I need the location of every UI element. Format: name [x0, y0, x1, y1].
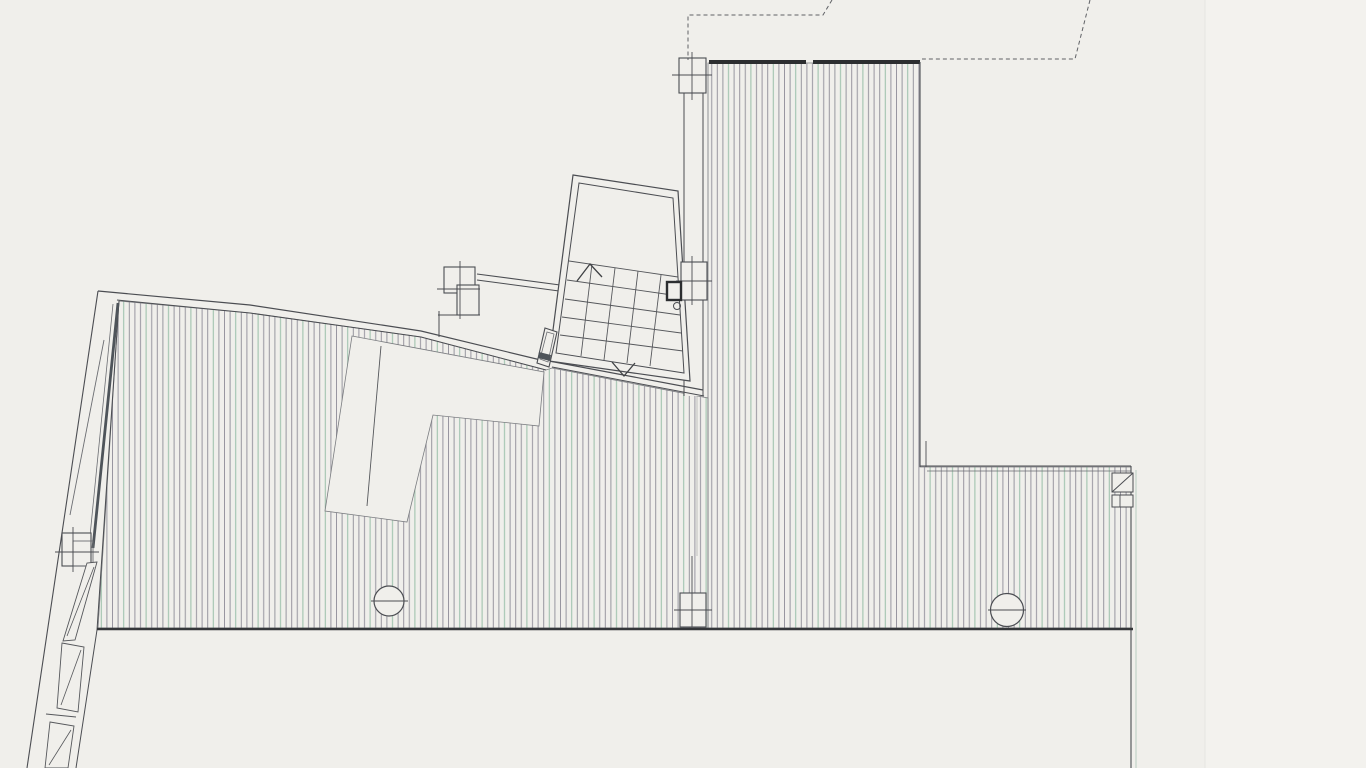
left-wall-column — [62, 533, 91, 566]
landing-top-wall-inner — [477, 280, 559, 291]
left-wall-wedge — [63, 562, 97, 641]
void-diagonal-line — [367, 346, 381, 506]
left-wall-tick — [46, 714, 76, 717]
left-wall-wedge-diagonal — [67, 567, 94, 636]
left-wall-segment-2 — [45, 722, 74, 768]
stair-door-frame — [667, 282, 681, 300]
roof-outline-dashed-right — [922, 0, 1090, 59]
mid-column-top — [679, 58, 706, 93]
roof-outline-dashed-left — [688, 0, 832, 60]
landing-top-wall-outer — [477, 274, 560, 285]
paper-right-strip — [1205, 0, 1366, 768]
stair-enclosure-outer — [549, 175, 690, 381]
ext-corner-box-2 — [1112, 495, 1133, 507]
scanned-floor-plan-page — [0, 0, 1366, 768]
floor-plan-drawing — [0, 0, 1366, 768]
